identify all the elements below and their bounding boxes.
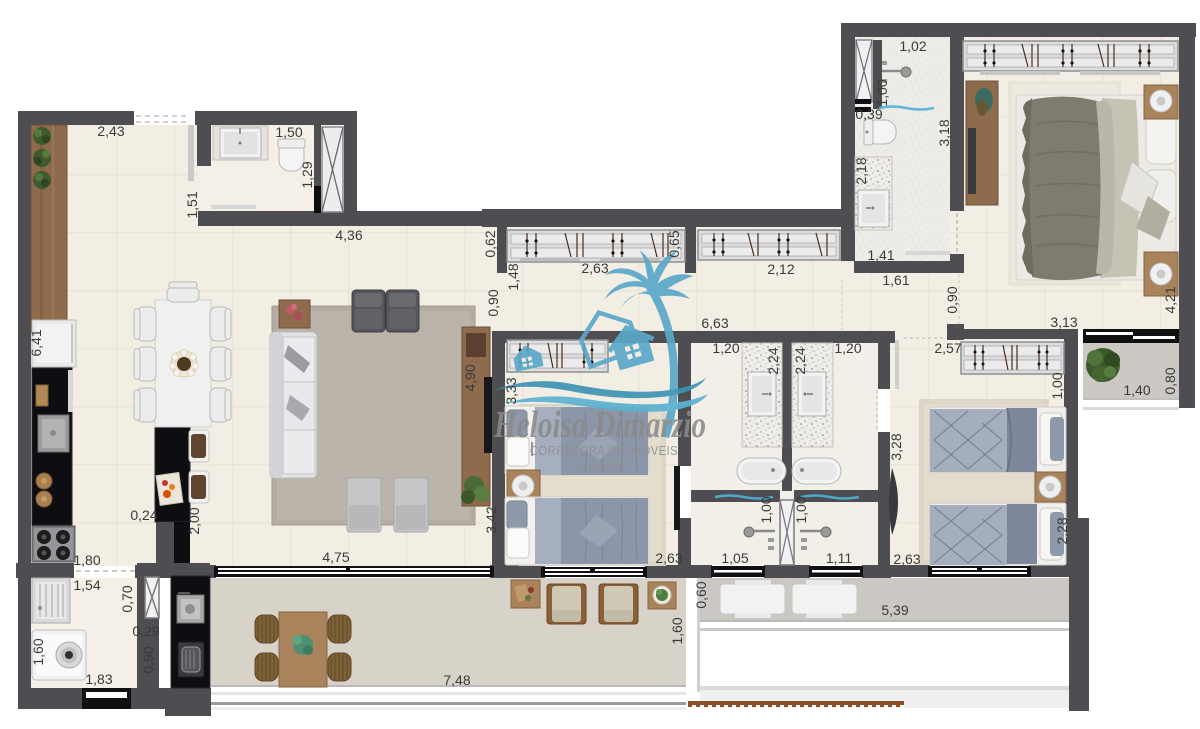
svg-text:1,50: 1,50 xyxy=(275,124,302,140)
svg-text:1,20: 1,20 xyxy=(834,340,861,356)
svg-text:0,62: 0,62 xyxy=(482,230,498,257)
svg-text:1,40: 1,40 xyxy=(1123,382,1150,398)
svg-text:1,20: 1,20 xyxy=(712,340,739,356)
svg-text:1,02: 1,02 xyxy=(899,38,926,54)
svg-text:1,41: 1,41 xyxy=(867,247,894,263)
svg-text:2,24: 2,24 xyxy=(765,347,781,374)
svg-text:2,12: 2,12 xyxy=(767,261,794,277)
svg-text:1,51: 1,51 xyxy=(184,191,200,218)
svg-text:2,28: 2,28 xyxy=(1054,517,1070,544)
svg-text:1,00: 1,00 xyxy=(1049,372,1065,399)
svg-text:0,29: 0,29 xyxy=(132,623,159,639)
svg-text:1,80: 1,80 xyxy=(73,552,100,568)
svg-text:2,63: 2,63 xyxy=(893,551,920,567)
svg-text:1,00: 1,00 xyxy=(758,496,774,523)
svg-text:0,90: 0,90 xyxy=(485,289,501,316)
svg-text:2,24: 2,24 xyxy=(792,347,808,374)
svg-text:0,24: 0,24 xyxy=(130,507,157,523)
svg-text:0,60: 0,60 xyxy=(693,581,709,608)
svg-text:4,21: 4,21 xyxy=(1162,286,1178,313)
svg-text:3,13: 3,13 xyxy=(1050,314,1077,330)
svg-text:1,00: 1,00 xyxy=(793,496,809,523)
svg-text:6,41: 6,41 xyxy=(28,329,44,356)
svg-text:7,48: 7,48 xyxy=(443,672,470,688)
svg-text:1,05: 1,05 xyxy=(721,550,748,566)
svg-text:0,70: 0,70 xyxy=(119,585,135,612)
svg-text:2,57: 2,57 xyxy=(934,340,961,356)
svg-text:1,48: 1,48 xyxy=(505,263,521,290)
svg-text:1,83: 1,83 xyxy=(85,671,112,687)
svg-text:2,43: 2,43 xyxy=(97,123,124,139)
svg-text:3,42: 3,42 xyxy=(483,506,499,533)
svg-text:4,90: 4,90 xyxy=(462,364,478,391)
svg-text:1,29: 1,29 xyxy=(299,161,315,188)
svg-text:CORRETORA DE IMÓVEIS: CORRETORA DE IMÓVEIS xyxy=(530,443,678,458)
svg-text:3,33: 3,33 xyxy=(503,377,519,404)
svg-text:1,54: 1,54 xyxy=(73,577,100,593)
svg-text:1,61: 1,61 xyxy=(882,272,909,288)
svg-text:0,39: 0,39 xyxy=(855,106,882,122)
svg-text:1,00: 1,00 xyxy=(874,79,890,106)
svg-text:3,28: 3,28 xyxy=(888,433,904,460)
svg-text:3,18: 3,18 xyxy=(936,119,952,146)
svg-text:0,65: 0,65 xyxy=(666,230,682,257)
svg-text:0,90: 0,90 xyxy=(944,286,960,313)
svg-text:Heloisa Dimarzio: Heloisa Dimarzio xyxy=(493,404,706,446)
svg-text:2,00: 2,00 xyxy=(186,507,202,534)
svg-text:2,63: 2,63 xyxy=(655,550,682,566)
svg-text:4,75: 4,75 xyxy=(322,549,349,565)
svg-text:1,11: 1,11 xyxy=(826,550,852,566)
svg-text:4,36: 4,36 xyxy=(335,227,362,243)
svg-text:2,63: 2,63 xyxy=(581,260,608,276)
svg-text:2,18: 2,18 xyxy=(853,157,869,184)
svg-text:133525F: 133525F xyxy=(578,460,625,474)
svg-text:5,39: 5,39 xyxy=(881,602,908,618)
svg-text:1,60: 1,60 xyxy=(30,638,46,665)
svg-text:1,60: 1,60 xyxy=(669,617,685,644)
svg-text:0,80: 0,80 xyxy=(1162,367,1178,394)
svg-text:0,90: 0,90 xyxy=(140,646,156,673)
svg-text:6,63: 6,63 xyxy=(701,315,728,331)
